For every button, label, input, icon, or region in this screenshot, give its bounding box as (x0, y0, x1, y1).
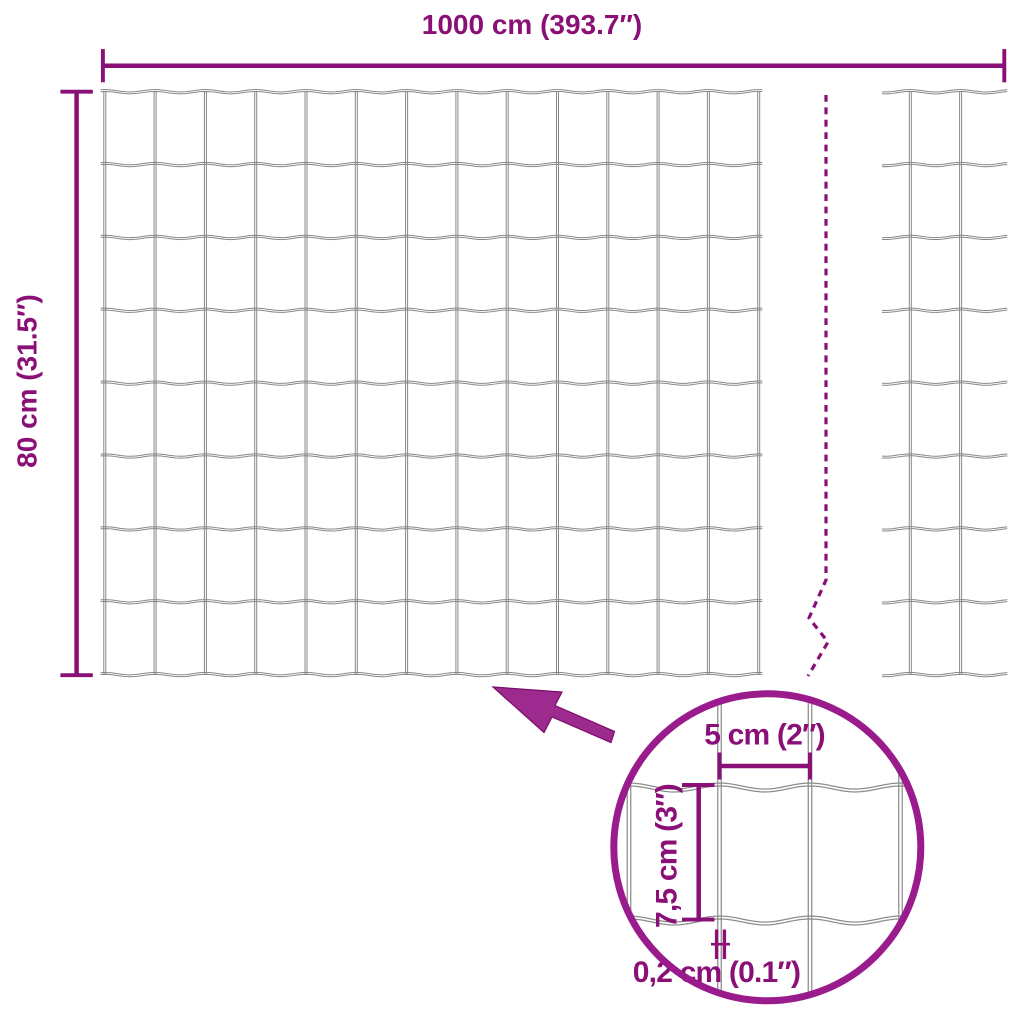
svg-text:7,5 cm (3″): 7,5 cm (3″) (650, 784, 683, 928)
svg-text:1000 cm (393.7″): 1000 cm (393.7″) (422, 9, 642, 40)
svg-text:5 cm (2″): 5 cm (2″) (704, 719, 825, 752)
svg-text:0,2 cm (0.1″): 0,2 cm (0.1″) (633, 956, 800, 989)
svg-text:80 cm (31.5″): 80 cm (31.5″) (12, 294, 43, 468)
